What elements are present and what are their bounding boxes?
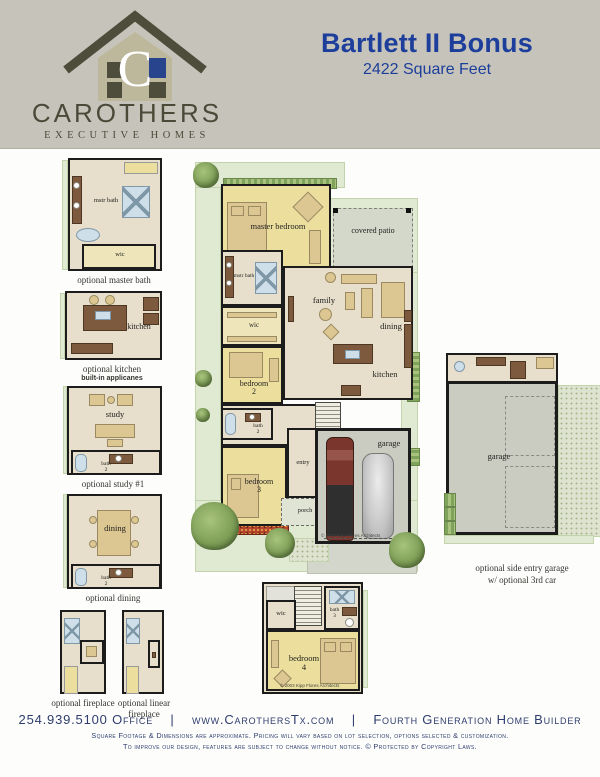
cabinet: [510, 361, 526, 379]
hedge-row: [444, 507, 456, 521]
plan-bonus-floor: wic bath 3 bedroom 4: [262, 582, 370, 700]
patio-post: [333, 208, 338, 213]
vanity: [342, 607, 357, 616]
plan-optional-kitchen: kitchen optional kitchen built-in applic…: [60, 291, 164, 383]
plan-optional-linear-fireplace: optional linear fireplace: [120, 610, 170, 712]
patio-post: [406, 208, 411, 213]
house-logo-icon: C: [58, 6, 213, 102]
footer-phone: 254.939.5100 Office: [19, 712, 153, 727]
plan-optional-dining: dining bath 2 optional dining: [63, 494, 163, 604]
sink-icon: [345, 350, 360, 359]
bed-icon: [229, 352, 263, 378]
plan-caption: optional side entry garage: [444, 563, 600, 574]
tub-icon: [225, 413, 236, 435]
pillow: [248, 206, 261, 216]
tree-icon: [265, 528, 295, 558]
shower-icon: [122, 186, 150, 218]
footer-tagline: Fourth Generation Home Builder: [373, 712, 581, 727]
room-label-wic: wic: [108, 252, 132, 259]
room-bath-2: bath 2: [71, 450, 161, 475]
plan-caption: optional study #1: [57, 479, 169, 490]
tree-icon: [195, 370, 212, 387]
fireplace-icon: [80, 640, 104, 664]
dresser: [271, 640, 279, 668]
tree-icon: [389, 532, 425, 568]
plan-subcaption: w/ optional 3rd car: [444, 575, 600, 586]
landscape-strip: [444, 535, 594, 544]
room-label-garage: garage: [368, 439, 410, 448]
room-mstr-bath: mstr bath: [221, 250, 283, 306]
room-label-wic: wic: [270, 611, 292, 618]
bath-number: 2: [105, 581, 108, 587]
room-bath-2: bath 2: [221, 408, 273, 440]
plan-frame: kitchen: [65, 291, 162, 360]
room-bedroom-4: bedroom 4 © 2003 Kipp Flores Architects: [266, 630, 360, 691]
shower-icon: [126, 618, 140, 644]
chair-icon: [131, 540, 139, 548]
room-entry: entry: [287, 428, 317, 498]
shower-icon: [329, 590, 355, 604]
tree-icon: [193, 162, 219, 188]
bath-number: 3: [333, 613, 336, 619]
plan-frame: [122, 610, 164, 694]
chair-icon: [131, 516, 139, 524]
car-stall-outline: [505, 396, 555, 456]
dresser: [269, 358, 279, 382]
room-label-bedroom-4: bedroom 4: [280, 654, 328, 672]
sink-icon: [73, 182, 80, 189]
sink-icon: [115, 455, 122, 462]
room-label-study: study: [93, 410, 137, 419]
pillow: [340, 642, 352, 652]
desk: [95, 424, 135, 438]
chair-icon: [89, 540, 97, 548]
architect-copyright: © 2003 Kipp Flores Architects: [280, 684, 339, 689]
desk-chair: [107, 439, 123, 447]
room-label-garage: garage: [471, 452, 527, 461]
tub-icon: [75, 454, 87, 472]
plan-optional-study: study bath 2 optional study #1: [63, 386, 163, 490]
closet: [124, 162, 158, 174]
range-icon: [341, 385, 361, 396]
brand-block: CAROTHERS EXECUTIVE HOMES: [22, 98, 232, 141]
plan-caption: optional master bath: [54, 275, 174, 286]
bedroom-number: 2: [252, 387, 256, 396]
room-label-entry: entry: [291, 460, 315, 467]
fridge-icon: [404, 310, 412, 322]
tub-icon: [75, 568, 87, 586]
plan-title-block: Bartlett II Bonus 2422 Square Feet: [282, 28, 572, 79]
sink-icon: [73, 202, 80, 209]
driveway: [558, 385, 600, 537]
chair-icon: [89, 516, 97, 524]
bath-number: 2: [105, 467, 108, 473]
room-covered-patio: covered patio: [333, 208, 413, 268]
chair-icon: [323, 324, 340, 341]
pillow: [324, 642, 336, 652]
stool-icon: [89, 295, 99, 305]
chair-icon: [89, 394, 105, 406]
sofa-icon: [341, 274, 377, 284]
architect-copyright: © 2003 Kipp Flores Architects: [321, 534, 380, 539]
cabinet: [476, 357, 506, 366]
utility-strip: [446, 353, 558, 383]
tree-icon: [196, 408, 210, 422]
bedroom-number: 3: [257, 485, 261, 494]
sink-icon: [249, 414, 255, 420]
room-bath-3: bath 3: [324, 586, 360, 630]
brand-subtitle: EXECUTIVE HOMES: [22, 130, 232, 141]
car-icon: [362, 453, 394, 539]
plan-frame: wic bath 3 bedroom 4: [262, 582, 363, 694]
room-label-bedroom-2: bedroom 2: [227, 380, 281, 397]
built-in-appliance: [143, 297, 159, 311]
closet-shelf: [227, 336, 277, 342]
brand-name: CAROTHERS: [22, 98, 232, 129]
footer-website: www.CarothersTx.com: [192, 712, 334, 727]
closet-shelf: [536, 357, 554, 369]
room-label-wic: wic: [241, 322, 267, 329]
footer-divider: |: [352, 712, 356, 727]
counter: [71, 343, 113, 354]
plan-optional-side-garage: garage optional side entry garage w/ opt…: [444, 353, 600, 593]
room-label-dining: dining: [371, 322, 411, 331]
footer-disclaimer-2: To improve our design, features are subj…: [0, 742, 600, 751]
carothers-house-logo: C: [58, 6, 213, 102]
footer-contact-line: 254.939.5100 Office | www.CarothersTx.co…: [0, 712, 600, 727]
hedge-row: [444, 493, 456, 507]
room-wic: wic: [221, 306, 283, 346]
room-label-bedroom-3: bedroom 3: [235, 478, 283, 495]
plan-optional-master-bath: mstr bath wic optional master bath: [62, 158, 166, 286]
plan-frame: [60, 610, 106, 694]
room-label-bath-3: bath 3: [327, 608, 342, 620]
dining-table: [97, 510, 131, 556]
shower-icon: [255, 262, 277, 294]
plan-frame: dining bath 2: [67, 494, 162, 589]
sink-icon: [226, 280, 232, 286]
dining-table: [381, 282, 405, 318]
hearth: [152, 652, 156, 658]
plan-frame: mstr bath wic: [68, 158, 162, 271]
sink-icon: [345, 618, 354, 627]
room-label-mstr-bath: mstr bath: [92, 198, 120, 205]
plan-name: Bartlett II Bonus: [282, 28, 572, 59]
side-table-icon: [325, 272, 336, 283]
side-table-icon: [107, 396, 115, 404]
footer-disclaimer-1: Square Footage & Dimensions are approxim…: [0, 731, 600, 740]
hedge-row: [444, 521, 456, 535]
living-area: family dining kitchen: [283, 266, 413, 400]
room-label-kitchen: kitchen: [361, 370, 409, 379]
room-label-master-bedroom: master bedroom: [247, 222, 309, 231]
footer-divider: |: [170, 712, 174, 727]
room-label-bath-2: bath 2: [249, 424, 267, 436]
closet: [126, 666, 139, 694]
tree-icon: [191, 502, 239, 550]
bedroom-number: 4: [302, 662, 306, 672]
room-bedroom-2: bedroom 2: [221, 346, 283, 404]
closet: [64, 666, 78, 694]
plan-frame: study bath 2: [67, 386, 162, 475]
sink-icon: [454, 361, 465, 372]
sofa-icon: [361, 288, 373, 318]
hearth: [86, 646, 97, 657]
plan-square-feet: 2422 Square Feet: [282, 61, 572, 79]
room-bath-2: bath 2: [71, 564, 161, 589]
stool-icon: [105, 295, 115, 305]
stairs-icon: [294, 586, 322, 626]
sink-icon: [95, 311, 111, 320]
room-label-mstr-bath: mstr bath: [233, 274, 255, 280]
plan-caption: optional dining: [57, 593, 169, 604]
room-label-kitchen: kitchen: [117, 323, 161, 331]
plan-caption: optional kitchen: [50, 364, 174, 375]
bath-number: 2: [257, 429, 260, 435]
flyer-page: C CAROTHERS EXECUTIVE HOMES Bartlett II …: [0, 0, 600, 777]
tv-console: [288, 296, 294, 322]
truck-icon: [326, 437, 354, 541]
room-garage: garage: [315, 428, 411, 544]
dresser: [309, 230, 321, 264]
masthead: C CAROTHERS EXECUTIVE HOMES Bartlett II …: [0, 0, 600, 149]
room-label-dining: dining: [91, 524, 139, 533]
landscape-strip: [363, 590, 368, 688]
room-label-family: family: [299, 296, 349, 305]
tub-icon: [76, 228, 100, 242]
plan-optional-fireplace: optional fireplace: [58, 610, 108, 712]
room-wic: wic: [82, 244, 156, 269]
sink-icon: [226, 262, 232, 268]
plan-caption: optional fireplace: [44, 698, 122, 709]
car-stall-outline: [505, 466, 555, 528]
logo-letter: C: [118, 41, 153, 98]
closet-shelf: [227, 312, 277, 318]
plan-subcaption: built-in applicanes: [50, 375, 174, 382]
room-garage: garage: [446, 381, 558, 535]
room-label-covered-patio: covered patio: [348, 227, 398, 235]
rug: [292, 191, 323, 222]
room-wic: wic: [266, 600, 296, 630]
sink-icon: [115, 569, 122, 576]
room-label-bath: bath 2: [97, 576, 115, 588]
shower-icon: [64, 618, 80, 644]
linear-fireplace-icon: [148, 640, 160, 668]
chair-icon: [117, 394, 133, 406]
ottoman: [319, 308, 332, 321]
plan-main-floor: master bedroom covered patio family dini…: [195, 162, 423, 572]
pillow: [231, 206, 244, 216]
room-label-bath: bath 2: [97, 462, 115, 474]
